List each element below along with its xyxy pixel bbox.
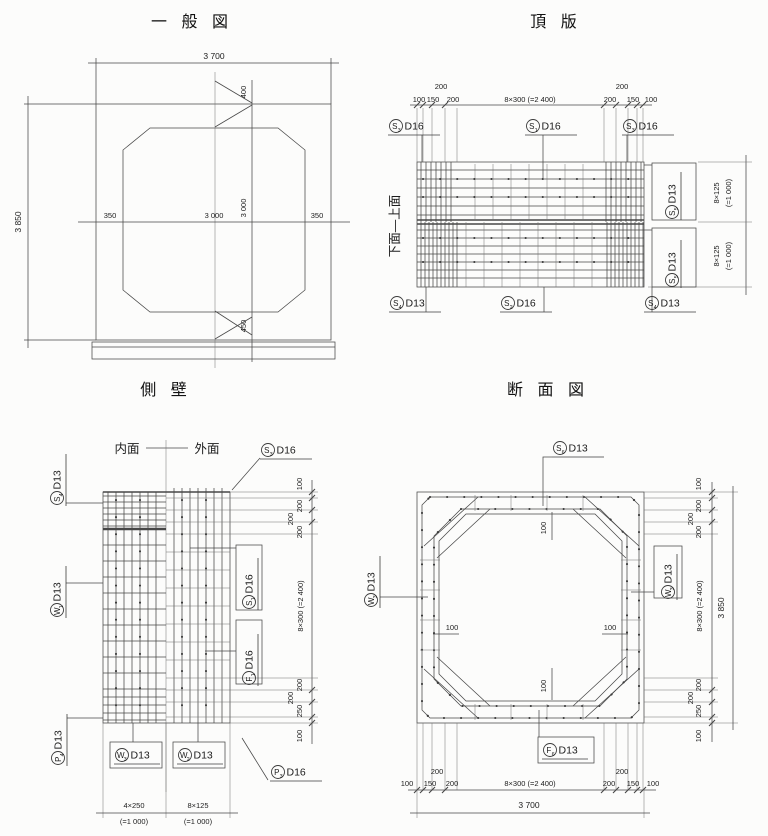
rebar-label-w3: W3D13 (114, 749, 160, 765)
dim-200: 200 (616, 82, 629, 91)
svg-text:D13: D13 (663, 564, 675, 583)
svg-text:S: S (668, 279, 677, 284)
svg-text:3: 3 (280, 774, 283, 780)
svg-text:D13: D13 (52, 582, 64, 601)
face-label-inner: 内面 (114, 442, 139, 456)
svg-text:D13: D13 (53, 730, 65, 749)
dim-200: 200 (295, 526, 304, 539)
top-slab-rebar-grid (417, 162, 644, 287)
rebar-label-s1-top: S1D16 (525, 120, 577, 136)
dim-span-2400: 8×300 (=2 400) (695, 580, 704, 632)
svg-text:4: 4 (59, 493, 65, 496)
dim-wall-right: 350 (311, 211, 324, 220)
svg-text:D16: D16 (517, 298, 536, 310)
dim-100: 100 (647, 779, 660, 788)
dim-8x125: 8×125 (712, 182, 721, 203)
svg-text:P: P (54, 757, 63, 762)
panel-general-view: 一 般 図 (13, 13, 350, 368)
dim-250: 250 (694, 705, 703, 718)
dim-100: 100 (413, 95, 426, 104)
svg-text:3: 3 (373, 595, 379, 598)
panel-title-general: 一 般 図 (151, 13, 233, 31)
svg-text:5: 5 (674, 275, 680, 278)
svg-text:D13: D13 (661, 298, 680, 310)
dim-250: 250 (295, 705, 304, 718)
rebar-label-f6: F6D13 (542, 744, 588, 760)
rebar-label-f1: F1D16 (243, 634, 259, 686)
svg-text:S: S (626, 122, 631, 131)
svg-text:D16: D16 (542, 121, 561, 133)
svg-text:D13: D13 (667, 184, 679, 203)
dim-200: 200 (694, 500, 703, 513)
rebar-label-w1: W1D13 (51, 566, 67, 618)
rebar-label-p4: P4D13 (52, 714, 68, 766)
panel-top-slab: 頂 版 (388, 13, 752, 312)
dim-8x125: 8×125 (712, 245, 721, 266)
dim-1000: (=1 000) (724, 241, 733, 270)
svg-text:D16: D16 (277, 445, 296, 457)
dim-4x250: 4×250 (123, 801, 144, 810)
dim-inner-width: 3 000 (205, 211, 224, 220)
svg-text:D16: D16 (287, 767, 306, 779)
panel-title-top-slab: 頂 版 (530, 13, 581, 31)
rebar-label-s4: S4D13 (51, 454, 67, 506)
general-outline (92, 72, 335, 368)
svg-text:D16: D16 (639, 121, 658, 133)
svg-text:S: S (556, 444, 561, 453)
dim-200: 200 (616, 767, 629, 776)
rebar-label-w3-right: W3D13 (662, 554, 678, 600)
dim-200: 200 (286, 513, 295, 526)
dim-100: 100 (295, 478, 304, 491)
dim-1000: (=1 000) (120, 817, 149, 826)
face-label-topslab: 下面—上面 (388, 195, 402, 258)
dim-100: 100 (295, 730, 304, 743)
svg-text:6: 6 (562, 450, 565, 456)
dim-100: 100 (604, 623, 617, 632)
svg-text:S: S (245, 601, 254, 606)
section-outline (417, 492, 644, 723)
rebar-label-s6: S6D13 (552, 442, 604, 458)
top-slab-dimensions (410, 102, 752, 312)
panel-title-side-wall: 側 壁 (140, 380, 191, 399)
dim-200: 200 (447, 95, 460, 104)
dim-250: 200 (686, 692, 695, 705)
dim-span-2400: 8×300 (=2 400) (296, 580, 305, 632)
rebar-label-s5-lower: S5D13 (666, 240, 682, 288)
rebar-label-p3: P3D16 (270, 766, 322, 782)
svg-text:3: 3 (670, 587, 676, 590)
svg-text:6: 6 (552, 752, 555, 758)
dim-width-total: 3 700 (203, 51, 225, 61)
dim-200: 200 (286, 692, 295, 705)
side-wall-rebar-grid (103, 440, 230, 792)
dim-inner-height: 3 000 (239, 199, 248, 218)
svg-text:D13: D13 (569, 443, 588, 455)
svg-text:F: F (245, 677, 254, 682)
drawing-sheet: 一 般 図 (0, 0, 768, 836)
rebar-label-s3-right: S3D16 (622, 120, 674, 136)
dim-height-total: 3 850 (13, 211, 23, 233)
dim-haunch-top: 400 (239, 86, 248, 99)
svg-text:D13: D13 (667, 252, 679, 271)
dim-total-3700: 3 700 (518, 800, 540, 810)
svg-text:D13: D13 (406, 298, 425, 310)
top-slab-rebar-labels: S3D16 S1D16 S3D16 S4D13 S2D16 S4D13 S5D1… (388, 120, 696, 313)
svg-text:D13: D13 (52, 470, 64, 489)
svg-text:4: 4 (654, 305, 657, 311)
dim-200: 200 (604, 95, 617, 104)
dim-100: 100 (446, 623, 459, 632)
dim-200: 200 (686, 513, 695, 526)
svg-text:3: 3 (632, 128, 635, 134)
svg-text:D13: D13 (366, 572, 378, 591)
svg-text:4: 4 (60, 753, 66, 756)
dim-200: 200 (694, 679, 703, 692)
rebar-label-s4-left: S4D13 (389, 297, 441, 313)
svg-text:5: 5 (674, 207, 680, 210)
panel-cross-section: 断 面 図 (365, 381, 739, 818)
svg-text:3: 3 (124, 757, 127, 763)
dim-span-2400: 8×300 (=2 400) (504, 779, 556, 788)
panel-title-section: 断 面 図 (507, 381, 589, 399)
svg-text:S: S (504, 299, 509, 308)
dim-wall-left: 350 (104, 211, 117, 220)
dim-200: 200 (295, 679, 304, 692)
svg-text:F: F (546, 746, 551, 755)
dim-200: 200 (446, 779, 459, 788)
dim-150: 150 (424, 779, 437, 788)
drawing-canvas: 一 般 図 (0, 0, 768, 836)
section-rebar-labels: S6D13 F6D13 W3D13 W3D13 (365, 442, 678, 760)
svg-text:2: 2 (510, 305, 513, 311)
svg-text:1: 1 (251, 597, 257, 600)
svg-text:D16: D16 (405, 121, 424, 133)
dim-1000: (=1 000) (184, 817, 213, 826)
dim-200: 200 (431, 767, 444, 776)
svg-text:1: 1 (251, 673, 257, 676)
dim-1000: (=1 000) (724, 178, 733, 207)
rebar-label-s1: S1D16 (243, 558, 259, 610)
dim-200: 200 (295, 500, 304, 513)
dim-total-3850: 3 850 (716, 597, 726, 619)
svg-text:S: S (392, 122, 397, 131)
svg-text:3: 3 (398, 128, 401, 134)
svg-text:D16: D16 (244, 650, 256, 669)
svg-text:S: S (53, 497, 62, 502)
dim-100: 100 (694, 478, 703, 491)
svg-text:S: S (529, 122, 534, 131)
svg-text:1: 1 (59, 605, 65, 608)
svg-text:2: 2 (187, 757, 190, 763)
dim-150: 150 (427, 95, 440, 104)
dim-100: 100 (401, 779, 414, 788)
svg-text:P: P (274, 768, 279, 777)
svg-text:D13: D13 (559, 745, 578, 757)
panel-side-wall: 側 壁 内面 外面 (51, 380, 323, 826)
dim-150: 150 (627, 95, 640, 104)
dim-200: 200 (603, 779, 616, 788)
svg-text:3: 3 (270, 452, 273, 458)
svg-text:S: S (648, 299, 653, 308)
dim-100: 100 (539, 680, 548, 693)
rebar-label-s5-upper: S5D13 (666, 172, 682, 220)
dim-100: 100 (539, 522, 548, 535)
dim-100: 100 (645, 95, 658, 104)
dim-200: 200 (435, 82, 448, 91)
general-dim-texts: 3 700 3 850 350 3 000 350 3 000 400 450 (13, 51, 323, 332)
dim-200: 200 (694, 526, 703, 539)
svg-text:1: 1 (535, 128, 538, 134)
dim-span-2400: 8×300 (=2 400) (504, 95, 556, 104)
svg-text:S: S (264, 446, 269, 455)
svg-text:S: S (393, 299, 398, 308)
dim-100: 100 (694, 730, 703, 743)
rebar-label-w3-left: W3D13 (365, 556, 381, 608)
section-dim-texts: 100 100 100 100 100 150 200 200 8×300 (=… (401, 478, 726, 810)
svg-text:D13: D13 (194, 750, 213, 762)
rebar-label-w2: W2D13 (177, 749, 223, 765)
svg-text:D13: D13 (131, 750, 150, 762)
svg-text:D16: D16 (244, 574, 256, 593)
face-label-outer: 外面 (194, 442, 219, 456)
svg-text:S: S (668, 211, 677, 216)
dim-haunch-bottom: 450 (239, 320, 248, 333)
side-wall-rebar-labels: S4D13 W1D13 P4D13 S3D16 S1D16 F1D16 P3D1… (51, 444, 323, 782)
dim-8x125: 8×125 (187, 801, 208, 810)
dim-150: 150 (627, 779, 640, 788)
rebar-label-s4-right: S4D13 (644, 297, 696, 313)
svg-text:4: 4 (399, 305, 402, 311)
general-dimensions (24, 58, 350, 362)
rebar-label-s3: S3D16 (260, 444, 312, 460)
